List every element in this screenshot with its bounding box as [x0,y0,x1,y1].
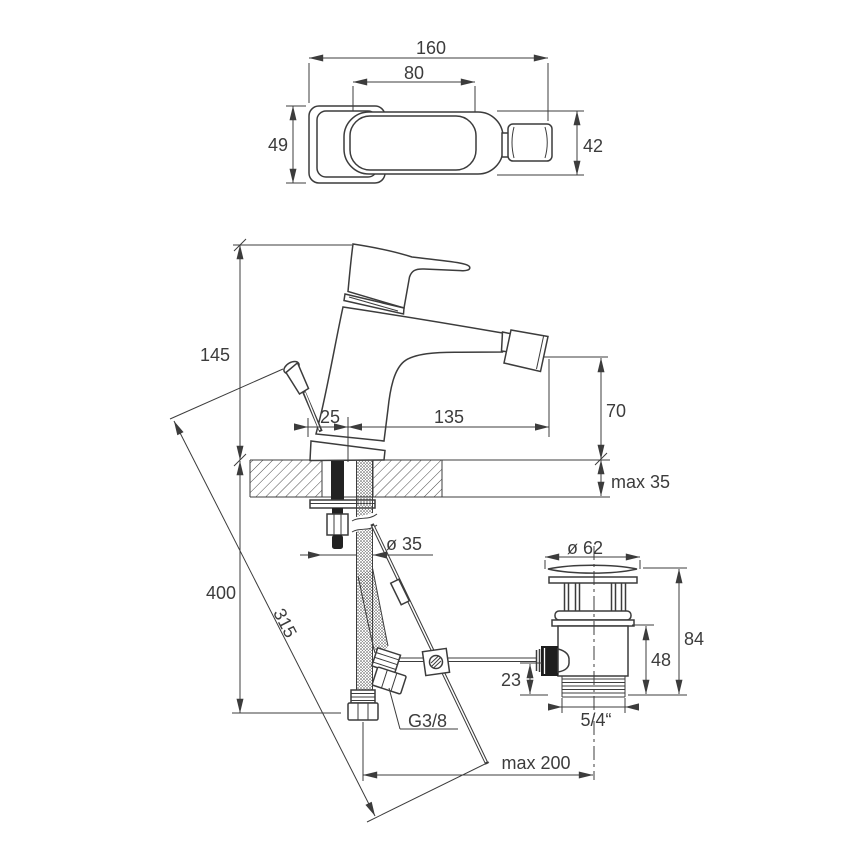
dim-23-label: 23 [501,670,521,690]
dim-70-label: 70 [606,401,626,421]
top-view-faucet [309,106,552,183]
dim-80-label: 80 [404,63,424,83]
technical-drawing: 160 80 49 42 [0,0,868,868]
label-g38: G3/8 [408,711,447,731]
dim-hole-label: ø 35 [386,534,422,554]
mounting-stud [331,461,344,500]
faucet-body-spout [316,307,503,441]
drain-assembly [541,546,637,780]
dim-49-label: 49 [268,135,288,155]
counter-section [250,460,610,497]
dim-25-label: 25 [320,407,340,427]
waste-ball-joint [541,646,558,676]
waste-plug-dome [548,565,637,573]
page: { "meta": { "title": "Bidet mixer tap in… [0,0,868,868]
horizontal-linkage-rod [392,649,540,672]
pop-up-knob-rod [282,359,321,432]
dim-145-label: 145 [200,345,230,365]
dim-48-label: 48 [651,650,671,670]
side-view-faucet [282,244,548,461]
dim-315-label: 315 [269,605,301,641]
dim-42-label: 42 [583,136,603,156]
aerator-side [504,330,548,372]
dim-135-label: 135 [434,407,464,427]
dim-54-label: 5/4“ [580,710,611,730]
dim-max200-label: max 200 [501,753,570,773]
waste-body [558,626,628,676]
hose-nut [348,703,378,720]
dim-84-label: 84 [684,629,704,649]
dim-400-label: 400 [206,583,236,603]
dim-max35-label: max 35 [611,472,670,492]
dim-o62-label: ø 62 [567,538,603,558]
dim-160-label: 160 [416,38,446,58]
mounting-nut [327,514,348,535]
